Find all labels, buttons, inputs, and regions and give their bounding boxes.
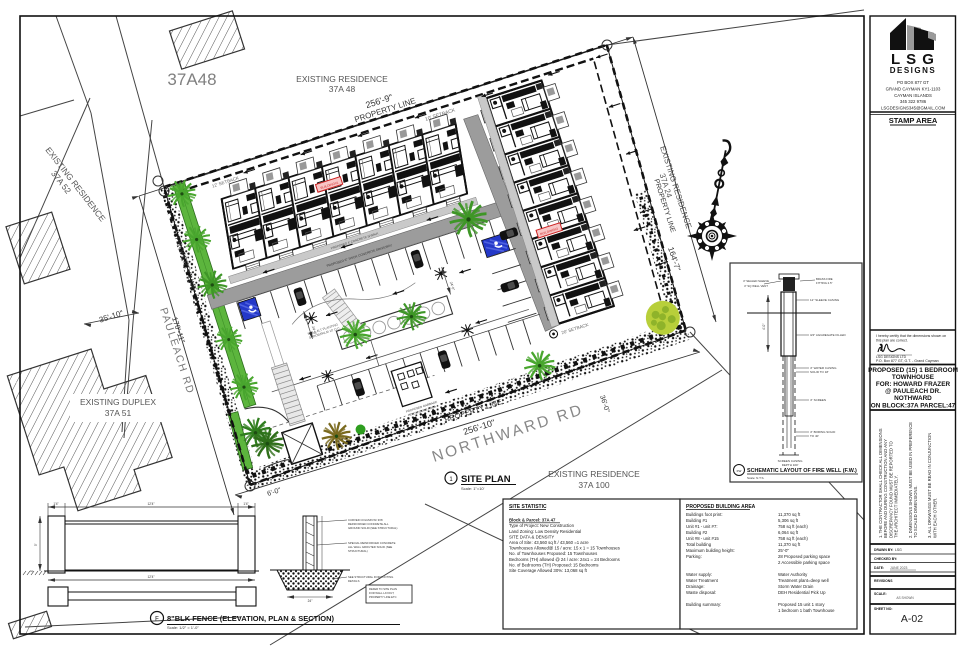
svg-text:Water Authority: Water Authority [778,572,808,577]
svg-text:3/4" AGGREGATE FILLED: 3/4" AGGREGATE FILLED [810,333,847,337]
svg-text:SITE STATISTIC: SITE STATISTIC [509,504,547,510]
svg-text:Site Coverage Allowed 30%: 13,: Site Coverage Allowed 30%: 13,068 sq ft [509,568,588,573]
svg-text:Proposed 15 unit 1 story: Proposed 15 unit 1 story [778,602,825,607]
svg-text:PROPOSED (15) 1 BEDROOM: PROPOSED (15) 1 BEDROOM [868,367,958,374]
svg-text:Unit #1 - unit #7:: Unit #1 - unit #7: [686,524,718,529]
svg-text:Bedrooms (TH) allowed @ 24 / a: Bedrooms (TH) allowed @ 24 / acre: 24x1 … [509,557,620,562]
svg-text:ON BLOCK:37A PARCEL:47: ON BLOCK:37A PARCEL:47 [871,402,956,409]
svg-text:JUNE 2023: JUNE 2023 [890,566,907,570]
svg-text:758 sq ft (each): 758 sq ft (each) [778,524,808,529]
svg-text:AS SHOWN: AS SHOWN [896,596,914,600]
svg-text:SHEET NO:: SHEET NO: [874,607,892,611]
svg-text:LSGDESIGNS345@GMAIL.COM: LSGDESIGNS345@GMAIL.COM [881,106,945,111]
svg-text:4" SEALED SLEEVE: 4" SEALED SLEEVE [743,279,769,283]
svg-text:this plan are correct.: this plan are correct. [876,339,908,343]
svg-text:37A48: 37A48 [167,70,216,89]
svg-text:TO 40': TO 40' [810,434,819,438]
svg-text:GL: GL [30,569,34,573]
svg-text:F: F [155,617,159,623]
svg-text:DRAWN BY:: DRAWN BY: [874,548,893,552]
svg-text:I hereby certify that the dime: I hereby certify that the dimensions sho… [876,334,946,338]
svg-text:FOR: HOWARD FRAZER: FOR: HOWARD FRAZER [876,381,951,388]
svg-text:REVISIONS: REVISIONS [874,579,893,583]
svg-text:Block & Parcel: 37A 47: Block & Parcel: 37A 47 [509,518,556,523]
svg-text:LSG: LSG [895,548,902,552]
svg-text:5': 5' [34,543,38,546]
svg-text:PROPERTY LINE ETC: PROPERTY LINE ETC [369,595,397,599]
svg-text:PROPOSED BUILDING AREA: PROPOSED BUILDING AREA [686,504,756,510]
svg-text:SITE DATA & DENSITY: SITE DATA & DENSITY [509,534,554,539]
svg-text:Treatment plant=deep well: Treatment plant=deep well [778,578,829,583]
svg-text:STRUCTURAL): STRUCTURAL) [348,549,368,553]
svg-text:Area of Site: 43,560 sq ft / 4: Area of Site: 43,560 sq ft / 43,560 =1 a… [509,540,589,545]
svg-text:Maximum building height:: Maximum building height: [686,548,735,553]
svg-text:CHECKED BY:: CHECKED BY: [874,557,897,561]
svg-text:758 sq ft (each): 758 sq ft (each) [778,536,808,541]
svg-text:SCHEMATIC LAYOUT OF FIRE WELL: SCHEMATIC LAYOUT OF FIRE WELL (F.W.) [747,468,857,474]
svg-text:TO SCALED DIMENSIONS.: TO SCALED DIMENSIONS. [913,485,918,538]
svg-text:12'4": 12'4" [147,502,154,506]
svg-text:37A 51: 37A 51 [105,408,132,418]
svg-text:2 Accessible parking space: 2 Accessible parking space [778,560,830,565]
svg-text:Townhouses Allowed@ 15 / acre:: Townhouses Allowed@ 15 / acre: 15 x 1 = … [509,546,620,551]
svg-text:5,306 sq ft: 5,306 sq ft [778,518,799,523]
svg-text:GRAND CAYMAN KY1-1103: GRAND CAYMAN KY1-1103 [886,86,941,91]
svg-text:25'-0": 25'-0" [778,548,789,553]
svg-text:NOTHWARD: NOTHWARD [894,395,932,402]
svg-text:1 bedroom 1 bath Townhouse: 1 bedroom 1 bath Townhouse [778,608,835,613]
svg-text:Scale: N.T.S.: Scale: N.T.S. [747,476,765,480]
svg-text:TOWNHOUSE: TOWNHOUSE [892,374,935,381]
svg-text:PO BOX 877 GT: PO BOX 877 GT [897,80,929,85]
svg-text:A-02: A-02 [901,613,923,625]
svg-text:1'4": 1'4" [53,502,58,506]
svg-text:Scale: 1/2" = 1'-0": Scale: 1/2" = 1'-0" [167,625,199,630]
svg-text:No. of Townhouses Proposed: 15: No. of Townhouses Proposed: 15 Townhouse… [509,551,597,556]
svg-text:STAMP AREA: STAMP AREA [889,116,938,125]
svg-text:Drainage:: Drainage: [686,584,705,589]
svg-text:345 322 9786: 345 322 9786 [900,99,927,104]
svg-text:SOLID TO 18': SOLID TO 18' [810,370,829,374]
svg-text:FOR WALL LAYOUT,: FOR WALL LAYOUT, [369,591,395,595]
svg-text:Water Treatment: Water Treatment [686,578,719,583]
svg-text:4" SCREEN: 4" SCREEN [810,398,826,402]
svg-text:Land Zoning: Low Density Resid: Land Zoning: Low Density Residential [509,529,581,534]
svg-text:28 Proposed parking space: 28 Proposed parking space [778,554,831,559]
svg-text:37A 48: 37A 48 [329,84,356,94]
svg-text:11,370 sq ft: 11,370 sq ft [778,512,801,517]
svg-text:EXISTING RESIDENCE: EXISTING RESIDENCE [296,74,388,84]
svg-text:DESIGNS: DESIGNS [890,66,937,75]
svg-text:Unit #8 - unit #15: Unit #8 - unit #15 [686,536,719,541]
svg-text:DATE:: DATE: [874,566,884,570]
svg-text:WITH EACH OTHER.: WITH EACH OTHER. [932,498,937,538]
svg-text:Buildings foot print:: Buildings foot print: [686,512,723,517]
svg-text:Storm Water Drain: Storm Water Drain [778,584,814,589]
svg-text:12'4": 12'4" [147,575,154,579]
svg-text:Scale: 1"=10': Scale: 1"=10' [461,486,485,491]
svg-text:Water supply:: Water supply: [686,572,712,577]
svg-text:FITTING 2.5": FITTING 2.5" [816,281,833,285]
svg-text:Building #2: Building #2 [686,530,708,535]
svg-text:Type of Project: New Construct: Type of Project: New Construction [509,523,575,528]
svg-text:8"BLK FENCE (ELEVATION, PLAN &: 8"BLK FENCE (ELEVATION, PLAN & SECTION) [167,614,335,623]
svg-text:EXISTING DUPLEX: EXISTING DUPLEX [80,397,156,407]
svg-text:THE ARCHITECT IMMEDIATELY.: THE ARCHITECT IMMEDIATELY. [894,475,899,538]
svg-text:EXISTING RESIDENCE: EXISTING RESIDENCE [548,469,640,479]
svg-text:4'-0": 4'-0" [762,324,766,330]
svg-text:P.O. Box 877 GT, G.T. - Grand: P.O. Box 877 GT, G.T. - Grand Cayman [876,359,939,363]
svg-text:Building summary:: Building summary: [686,602,721,607]
svg-text:REFER TO SITE PLAN: REFER TO SITE PLAN [369,587,397,591]
svg-text:DETAILS: DETAILS [348,579,360,583]
svg-text:CAYMAN ISLANDS: CAYMAN ISLANDS [894,93,932,98]
svg-text:DEPTH 100': DEPTH 100' [782,463,799,467]
svg-text:SITE PLAN: SITE PLAN [461,474,511,485]
svg-text:SCALE:: SCALE: [874,592,887,596]
svg-text:No. of Bedrooms (TH) Proposed:: No. of Bedrooms (TH) Proposed: 15 Bedroo… [509,562,599,567]
svg-text:Parking:: Parking: [686,554,702,559]
svg-text:1'4": 1'4" [243,502,248,506]
svg-text:FW: FW [737,469,742,473]
svg-text:24": 24" [308,599,313,603]
svg-text:4" SQ WELL VENT: 4" SQ WELL VENT [744,284,768,288]
svg-text:GROUND SOLID (SEE STRUCTURAL): GROUND SOLID (SEE STRUCTURAL) [348,526,397,530]
svg-text:11,370 sq ft: 11,370 sq ft [778,542,801,547]
svg-text:Waste disposal:: Waste disposal: [686,590,716,595]
svg-text:@ PAULEACH DR.: @ PAULEACH DR. [885,388,941,395]
svg-text:Building #1: Building #1 [686,518,708,523]
svg-text:37A 100: 37A 100 [578,480,609,490]
svg-text:6,064 sq ft: 6,064 sq ft [778,530,799,535]
svg-text:DEH Residential Pick Up: DEH Residential Pick Up [778,590,826,595]
svg-text:Total building: Total building [686,542,712,547]
svg-text:12" SLEEVE CASING: 12" SLEEVE CASING [810,298,840,302]
